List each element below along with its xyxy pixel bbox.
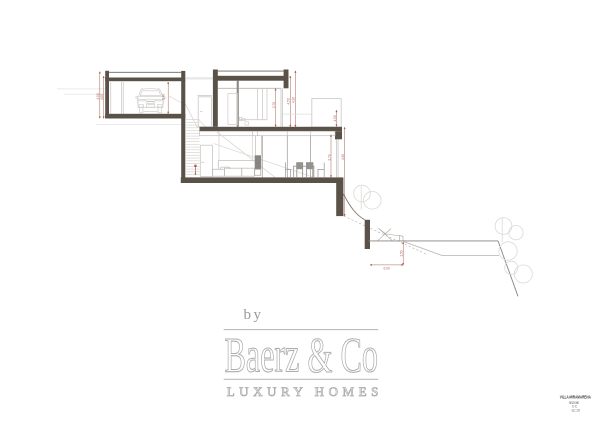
svg-text:VILLA MIRAMARENA: VILLA MIRAMARENA	[560, 394, 592, 399]
svg-text:4.05: 4.05	[100, 94, 104, 100]
svg-text:2.40: 2.40	[162, 93, 166, 99]
svg-text:2.79: 2.79	[327, 154, 331, 160]
svg-text:1.50: 1.50	[333, 115, 337, 121]
svg-text:Esc. 1:100: Esc. 1:100	[572, 408, 580, 412]
svg-text:Baerz & Co: Baerz & Co	[225, 327, 379, 383]
svg-text:6.00: 6.00	[383, 266, 389, 270]
svg-text:4.50: 4.50	[341, 154, 345, 160]
svg-text:1.50: 1.50	[399, 250, 403, 256]
svg-text:2.70: 2.70	[272, 102, 276, 108]
svg-text:by: by	[244, 307, 264, 323]
svg-text:4.90: 4.90	[292, 97, 296, 103]
svg-text:4.50: 4.50	[287, 98, 291, 104]
